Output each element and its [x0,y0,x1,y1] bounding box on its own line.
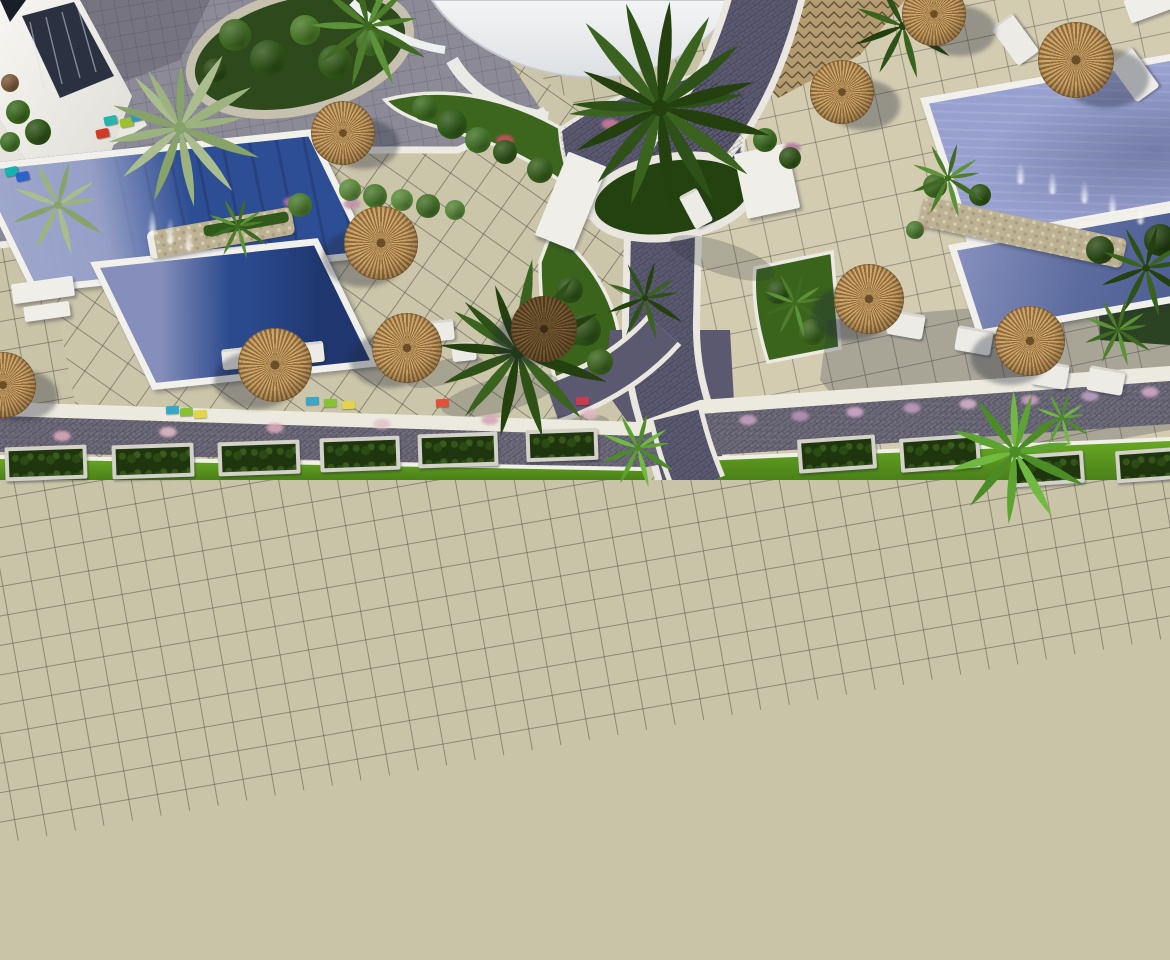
umbrella-canopy [238,328,312,402]
thatch-umbrella [995,306,1065,376]
umbrella-canopy [810,60,874,124]
umbrella-canopy [834,264,904,334]
umbrella-canopy [311,101,375,165]
thatch-umbrella [834,264,904,334]
umbrella-canopy [511,296,577,362]
thatch-umbrella [1038,22,1114,98]
umbrella-canopy [344,206,418,280]
thatch-umbrella [238,328,312,402]
umbrella-layer [0,0,1170,480]
thatch-umbrella [344,206,418,280]
thatch-umbrella [372,313,442,383]
thatch-umbrella [0,352,36,418]
thatch-umbrella [810,60,874,124]
umbrella-canopy [1038,22,1114,98]
thatch-umbrella [902,0,966,46]
thatch-umbrella [311,101,375,165]
thatch-umbrella [511,296,577,362]
umbrella-canopy [372,313,442,383]
aerial-resort-render: { "meta": {"type": "3d-aerial-architectu… [0,0,1170,480]
umbrella-canopy [995,306,1065,376]
